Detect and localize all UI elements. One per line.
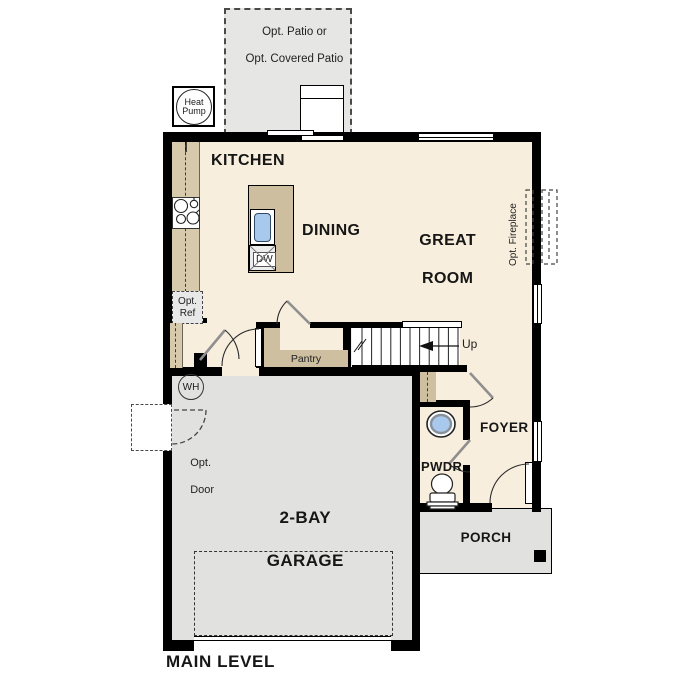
porch-label: PORCH bbox=[440, 530, 532, 545]
front-door-leaf bbox=[525, 462, 533, 504]
wall-foyer-bottom bbox=[412, 503, 492, 512]
foyer-label: FOYER bbox=[480, 420, 529, 435]
wall-garage-bottom-left bbox=[163, 640, 194, 651]
opt-door-label-line1: Opt. bbox=[190, 457, 211, 469]
wall-garage-bottom-right bbox=[391, 640, 420, 651]
opt-door-label: Opt. Door bbox=[178, 444, 214, 510]
patio-label-line1: Opt. Patio or bbox=[262, 26, 327, 38]
great-room-label-line1: GREAT bbox=[419, 232, 476, 249]
pantry-label: Pantry bbox=[291, 353, 321, 365]
optional-door-stoop bbox=[131, 404, 172, 451]
wall-stairs-bottom bbox=[352, 365, 467, 372]
pwdr-label: PWDR bbox=[421, 459, 462, 474]
opt-ref-label-line1: Opt. bbox=[178, 296, 197, 307]
island-sink-icon bbox=[250, 209, 275, 245]
opt-door-label-line2: Door bbox=[190, 484, 214, 496]
optional-patio-label: Opt. Patio or Opt. Covered Patio bbox=[224, 13, 352, 79]
dishwasher-icon: DW bbox=[249, 245, 276, 271]
up-label: Up bbox=[462, 337, 477, 351]
main-level-label: MAIN LEVEL bbox=[166, 652, 275, 672]
patio-label-line2: Opt. Covered Patio bbox=[245, 53, 343, 65]
cooktop-icon bbox=[172, 197, 200, 229]
optional-refrigerator: Opt. Ref bbox=[172, 291, 203, 324]
garage-label: 2-BAY GARAGE bbox=[245, 486, 345, 592]
hall-door-leaf bbox=[255, 328, 262, 367]
floorplan: Opt. Patio or Opt. Covered Patio Heat Pu… bbox=[0, 0, 687, 687]
patio-chimney-box bbox=[300, 85, 344, 135]
garage-label-line2: GARAGE bbox=[267, 551, 344, 570]
counter-lower bbox=[170, 323, 183, 368]
dw-label: DW bbox=[253, 252, 276, 267]
window-great-room-right bbox=[533, 284, 542, 324]
wall-hall-stub bbox=[194, 353, 207, 368]
garage-door-panel bbox=[194, 636, 391, 641]
stair-railing bbox=[402, 321, 462, 328]
wh-label: WH bbox=[183, 382, 200, 393]
wall-pwdr-right-upper bbox=[463, 400, 470, 440]
wall-pwdr-right-lower bbox=[463, 465, 470, 505]
stairs bbox=[352, 328, 460, 365]
window-foyer-right bbox=[533, 421, 542, 462]
great-room-label-line2: ROOM bbox=[422, 270, 473, 287]
heat-pump-label-line2: Pump bbox=[182, 106, 206, 116]
dining-label: DINING bbox=[302, 222, 360, 240]
garage-label-line1: 2-BAY bbox=[280, 508, 331, 527]
sliding-door-panel-right bbox=[301, 135, 344, 141]
porch-post bbox=[534, 550, 546, 562]
pantry-shelf-bottom: Pantry bbox=[264, 350, 348, 367]
great-room-label: GREAT ROOM bbox=[398, 213, 478, 307]
water-heater-icon: WH bbox=[178, 374, 204, 400]
opt-fireplace-label: Opt. Fireplace bbox=[508, 188, 519, 266]
heat-pump-icon: Heat Pump bbox=[172, 86, 215, 127]
window-great-room-top bbox=[418, 133, 494, 141]
kitchen-label: KITCHEN bbox=[211, 152, 285, 170]
wall-left-exterior bbox=[163, 132, 172, 651]
coat-closet-shelf bbox=[420, 372, 436, 402]
opt-ref-label-line2: Ref bbox=[180, 308, 196, 319]
